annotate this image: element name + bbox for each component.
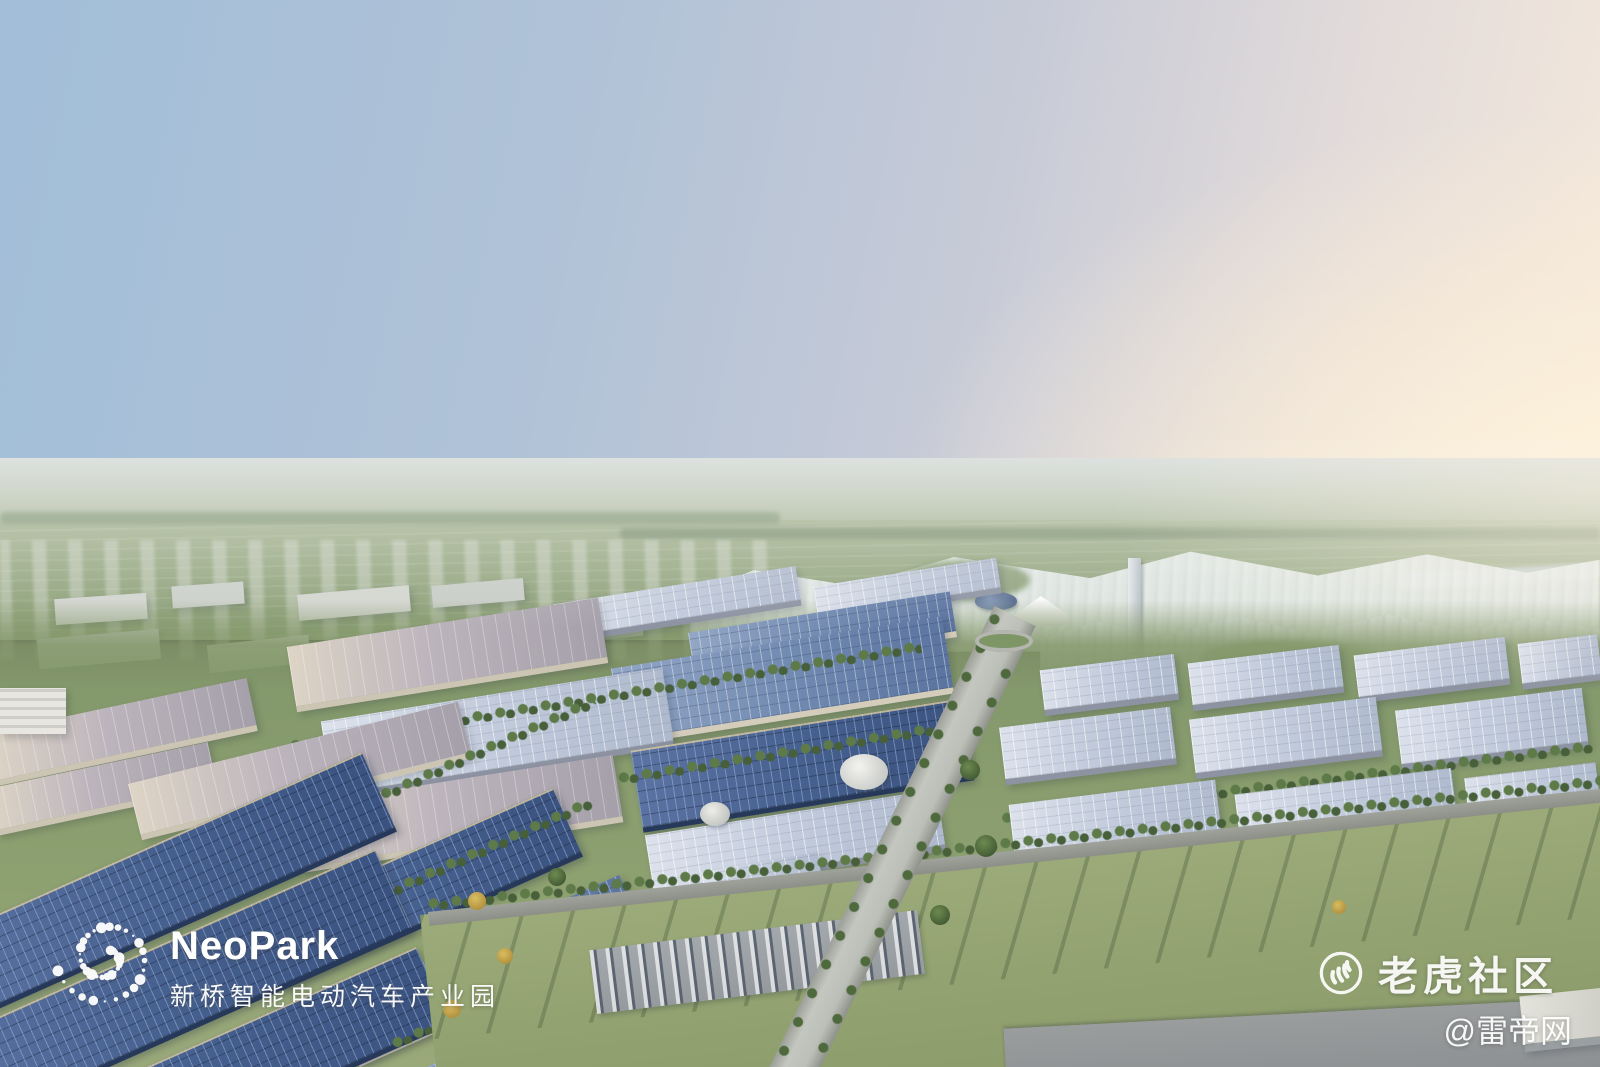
water-tank: [700, 802, 730, 826]
tiger-community-label: 老虎社区: [1378, 944, 1558, 1002]
tiger-circle-icon: [1318, 950, 1364, 996]
neopark-dots-logo: [52, 902, 160, 1014]
green-tree: [975, 835, 997, 857]
author-watermark-label: @雷帝网: [1444, 1006, 1573, 1052]
neopark-logo: NeoPark 新桥智能电动汽车产业园: [52, 902, 500, 1014]
neopark-wordmark: NeoPark: [170, 926, 500, 966]
office-building: [0, 688, 66, 734]
green-tree: [960, 760, 980, 780]
green-tree: [548, 868, 566, 886]
yellow-tree: [1332, 900, 1346, 914]
roundabout: [975, 630, 1033, 652]
treeline: [620, 528, 1600, 539]
tiger-watermark: 老虎社区: [1318, 944, 1558, 1002]
green-tree: [930, 905, 950, 925]
stage: NeoPark 新桥智能电动汽车产业园 老虎社区 @雷帝网: [0, 0, 1600, 1067]
warehouse: [1517, 634, 1600, 689]
treeline: [0, 512, 780, 524]
neopark-subtitle: 新桥智能电动汽车产业园: [170, 977, 500, 1013]
water-tank: [840, 754, 888, 790]
